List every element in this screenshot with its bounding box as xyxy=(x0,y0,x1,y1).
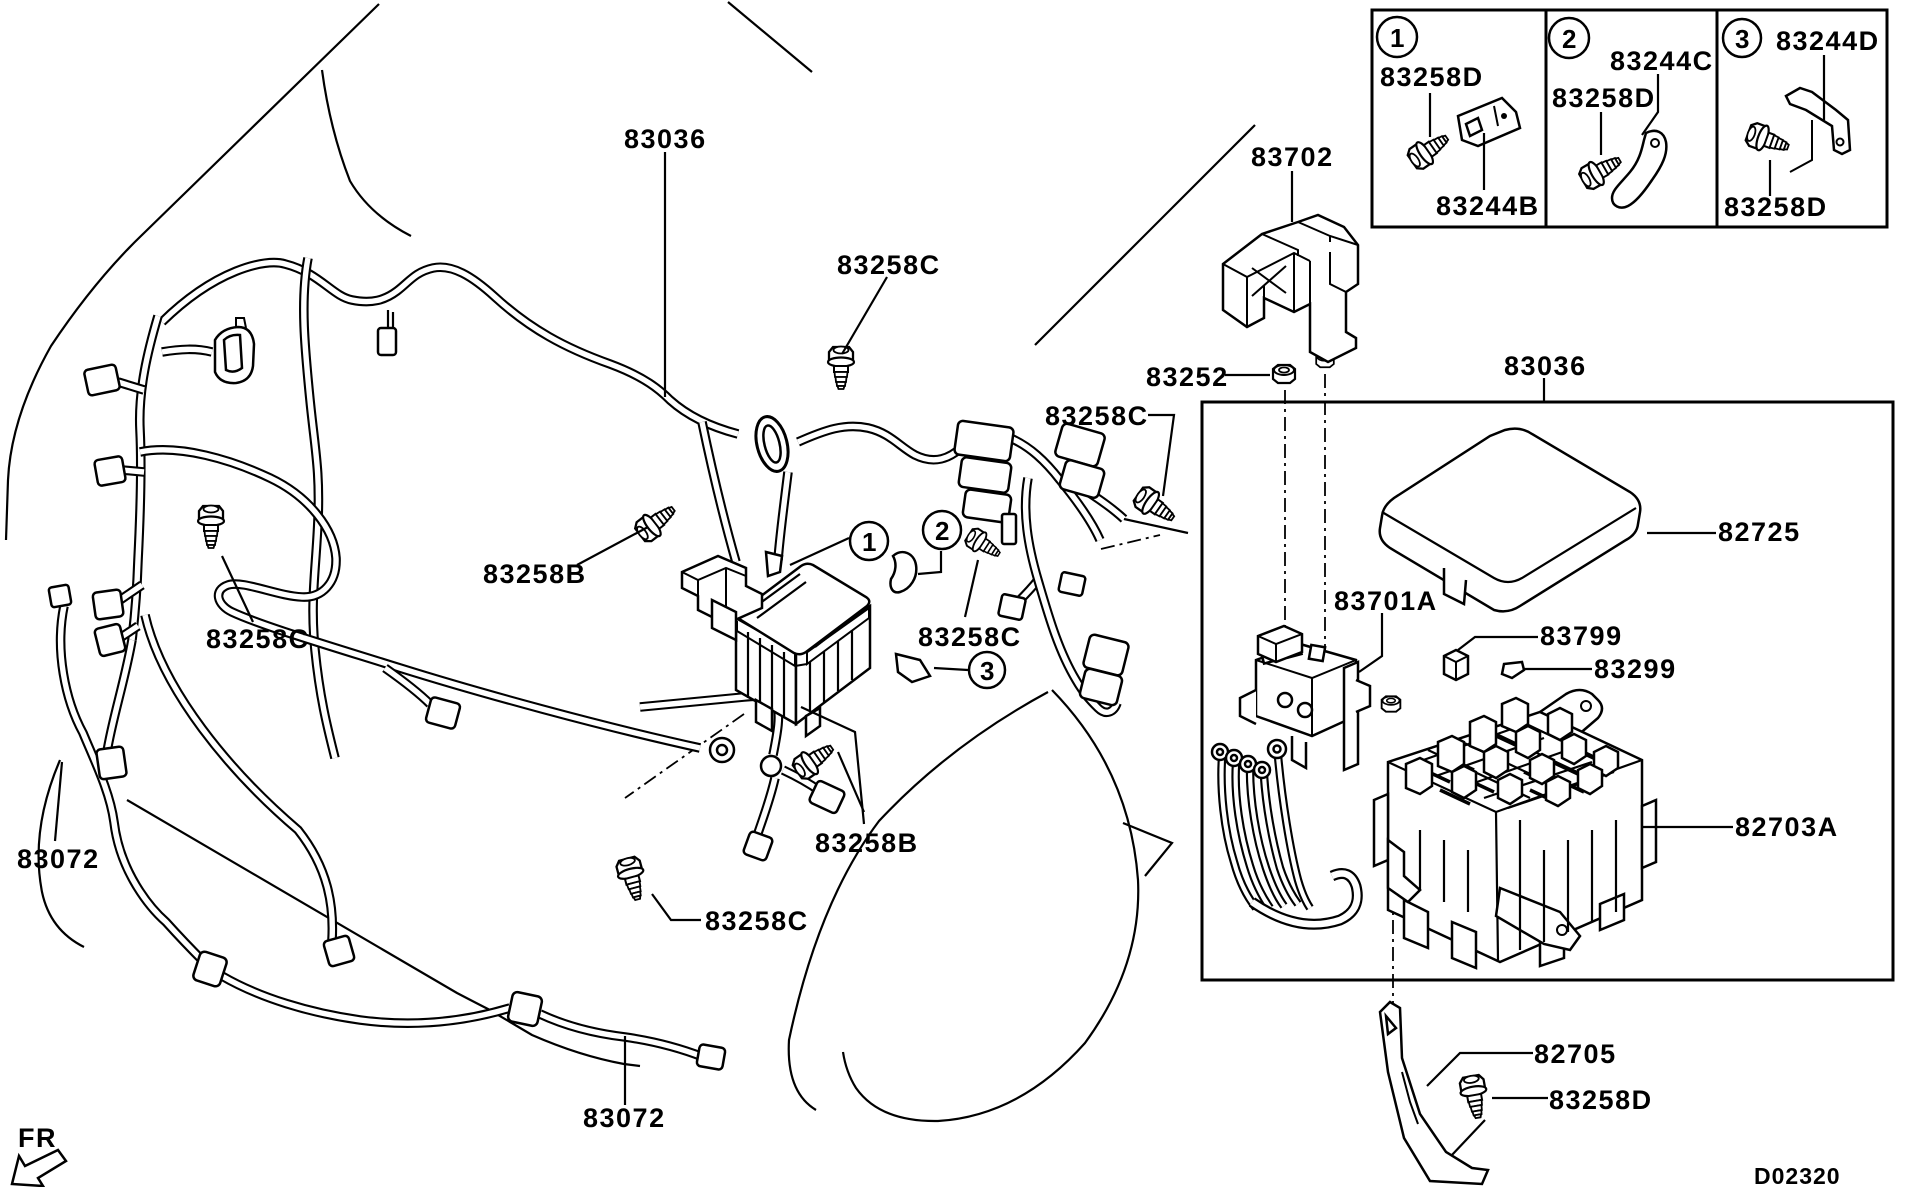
svg-text:83072: 83072 xyxy=(17,844,100,874)
svg-text:2: 2 xyxy=(935,516,949,546)
svg-text:83702: 83702 xyxy=(1251,142,1334,172)
svg-text:83244B: 83244B xyxy=(1436,191,1540,221)
svg-text:FR: FR xyxy=(18,1123,57,1153)
svg-text:83258C: 83258C xyxy=(1045,401,1149,431)
svg-text:83701A: 83701A xyxy=(1334,586,1438,616)
svg-text:83258C: 83258C xyxy=(918,622,1022,652)
svg-text:83799: 83799 xyxy=(1540,621,1623,651)
svg-text:82703A: 82703A xyxy=(1735,812,1839,842)
svg-text:82705: 82705 xyxy=(1534,1039,1617,1069)
svg-text:1: 1 xyxy=(1390,23,1404,53)
svg-text:83258D: 83258D xyxy=(1380,62,1484,92)
svg-text:83252: 83252 xyxy=(1146,362,1229,392)
svg-text:1: 1 xyxy=(862,527,876,557)
svg-text:83244C: 83244C xyxy=(1610,46,1714,76)
svg-text:3: 3 xyxy=(1735,24,1749,54)
svg-text:82725: 82725 xyxy=(1718,517,1801,547)
svg-text:3: 3 xyxy=(980,656,994,686)
svg-text:83258C: 83258C xyxy=(837,250,941,280)
svg-text:83258D: 83258D xyxy=(1724,192,1828,222)
svg-text:83258C: 83258C xyxy=(705,906,809,936)
svg-text:83258D: 83258D xyxy=(1552,83,1656,113)
svg-text:83258B: 83258B xyxy=(815,828,919,858)
svg-text:83036: 83036 xyxy=(624,124,707,154)
svg-text:83258D: 83258D xyxy=(1549,1085,1653,1115)
svg-text:83036: 83036 xyxy=(1504,351,1587,381)
svg-text:83258C: 83258C xyxy=(206,624,310,654)
svg-text:83244D: 83244D xyxy=(1776,26,1880,56)
svg-text:2: 2 xyxy=(1562,24,1576,54)
svg-text:83299: 83299 xyxy=(1594,654,1677,684)
svg-text:D02320: D02320 xyxy=(1754,1163,1841,1187)
svg-text:83072: 83072 xyxy=(583,1103,666,1133)
svg-text:83258B: 83258B xyxy=(483,559,587,589)
